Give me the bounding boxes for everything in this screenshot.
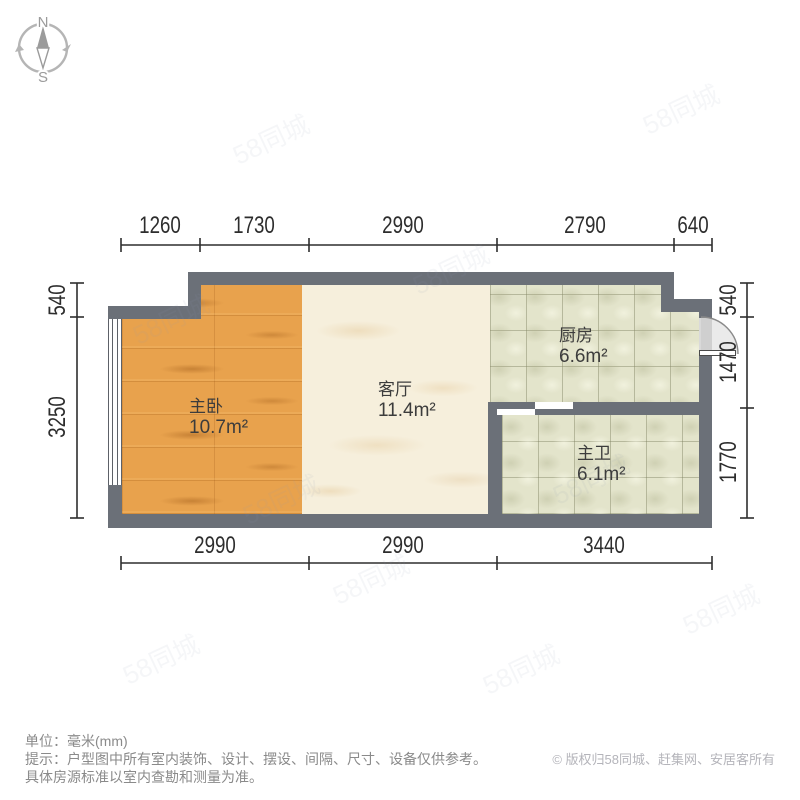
bathroom-name: 主卫 [577, 444, 626, 464]
living-room-name: 客厅 [378, 380, 436, 400]
kitchen-name: 厨房 [559, 326, 608, 346]
bathroom-label: 主卫 6.1m² [577, 444, 626, 487]
kitchen-label: 厨房 6.6m² [559, 326, 608, 369]
dim-left-540: 540 [44, 284, 72, 315]
floorplan-image: N S [0, 0, 800, 800]
wall-bottom [108, 514, 712, 528]
dim-bottom-2990b: 2990 [382, 532, 424, 560]
watermark: 58同城 [116, 625, 205, 693]
wall-top-left [108, 306, 201, 319]
dim-top-2990: 2990 [382, 212, 424, 240]
bedroom-area: 10.7m² [189, 417, 248, 440]
bathroom-sliding-door-leaf [535, 402, 573, 409]
dim-top-1730: 1730 [233, 212, 275, 240]
watermark: 58同城 [476, 635, 565, 703]
dim-top-640: 640 [677, 212, 708, 240]
wall-top-main [188, 272, 674, 285]
bathroom-sliding-door-leaf [497, 409, 535, 415]
tip-note-1: 提示：户型图中所有室内装饰、设计、摆设、间隔、尺寸、设备仅供参考。 [25, 749, 487, 769]
compass-icon: N S [8, 6, 78, 86]
dim-right-540: 540 [715, 284, 743, 315]
dim-bottom-3440: 3440 [583, 532, 625, 560]
unit-note: 单位：毫米(mm) [25, 731, 128, 751]
bathroom-area: 6.1m² [577, 464, 626, 487]
bedroom-name: 主卧 [189, 397, 248, 417]
living-room-label: 客厅 11.4m² [378, 380, 436, 423]
watermark: 58同城 [676, 575, 765, 643]
wall-notch-vertical [661, 272, 674, 312]
compass-north-label: N [38, 14, 49, 31]
copyright-note: © 版权归58同城、赶集网、安居客所有 [552, 749, 775, 768]
bedroom-label: 主卧 10.7m² [189, 397, 248, 440]
watermark: 58同城 [226, 105, 315, 173]
dim-top-2790: 2790 [564, 212, 606, 240]
tip-note-2: 具体房源标准以室内查勘和测量为准。 [25, 767, 263, 787]
watermark: 58同城 [636, 75, 725, 143]
dim-left-3250: 3250 [44, 396, 72, 438]
dim-right-1470: 1470 [715, 341, 743, 383]
wall-bathroom-left [488, 402, 502, 514]
dim-right-1770: 1770 [715, 441, 743, 483]
dim-top-1260: 1260 [139, 212, 181, 240]
compass-south-label: S [38, 69, 48, 86]
kitchen-area: 6.6m² [559, 346, 608, 369]
living-room-area: 11.4m² [378, 400, 436, 423]
dim-bottom-2990a: 2990 [194, 532, 236, 560]
window [108, 319, 122, 485]
